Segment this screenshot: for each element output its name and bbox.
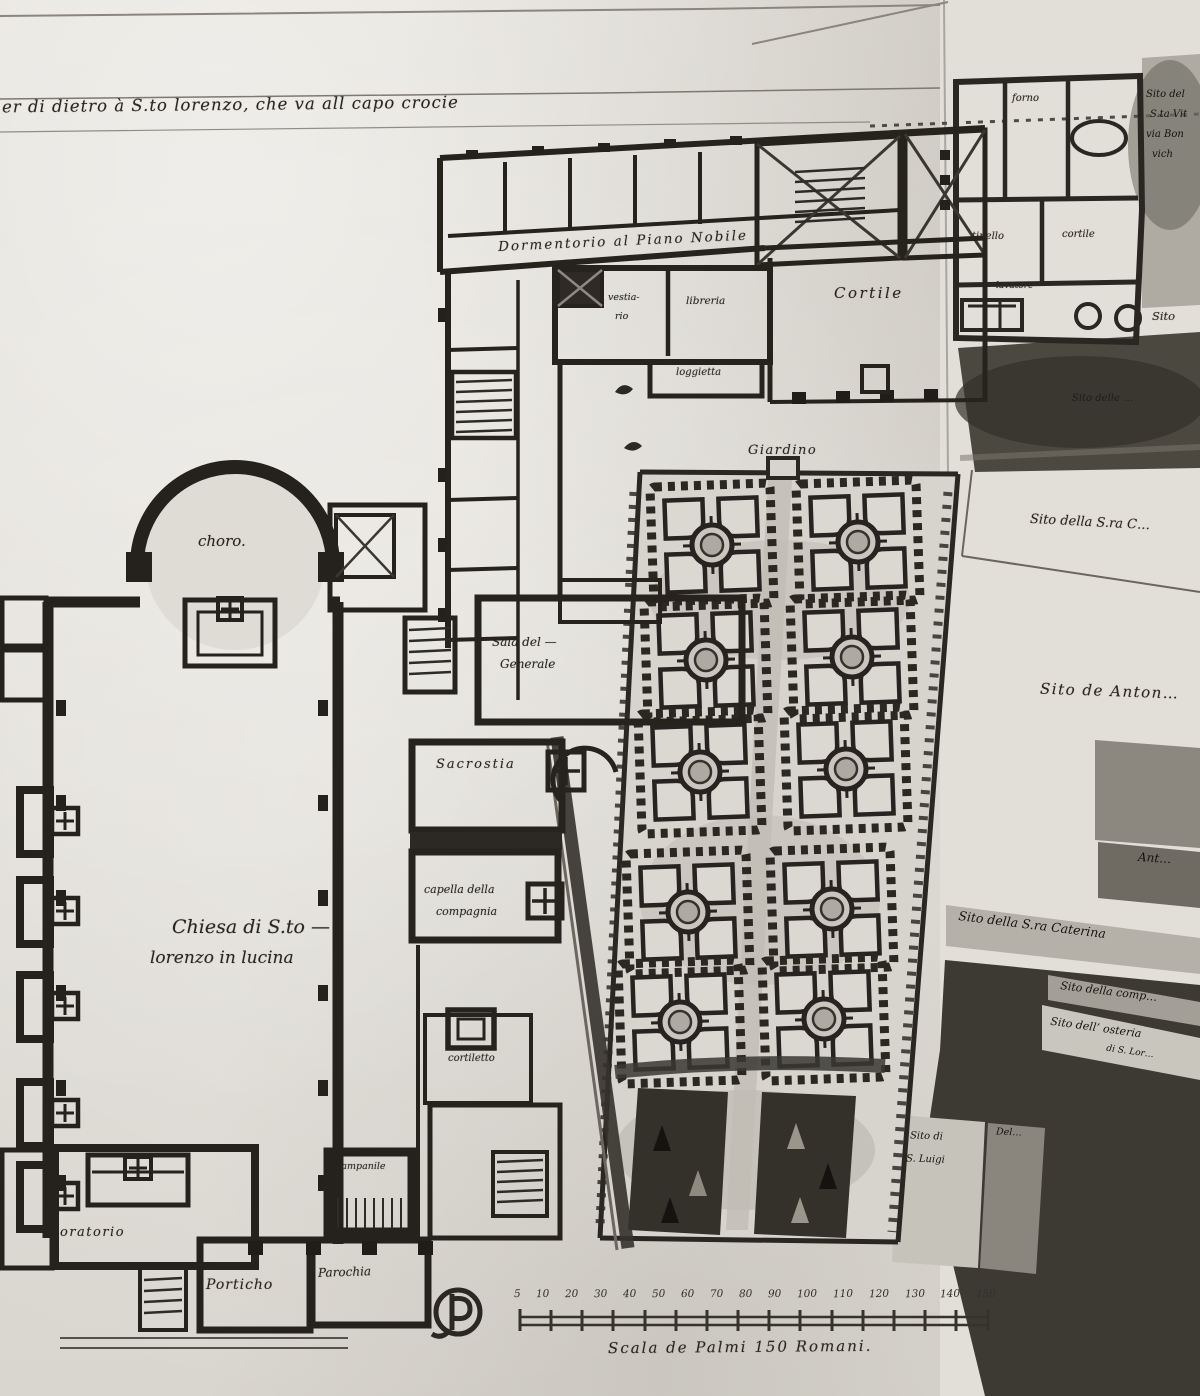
label-parochia: Parochia — [318, 1265, 372, 1279]
label-choro: choro. — [198, 534, 246, 550]
label-capella-2: compagnia — [436, 906, 497, 918]
capella-room — [412, 852, 558, 940]
scale-bar-caption: Scala de Palmi 150 Romani. — [608, 1339, 873, 1357]
label-sito-right: Sito — [1152, 310, 1175, 322]
well — [862, 366, 888, 392]
scale-tick: 40 — [623, 1288, 637, 1300]
church — [2, 467, 433, 1348]
scale-tick: 10 — [536, 1288, 550, 1300]
sketch-mark-icon — [615, 385, 633, 394]
label-sito-luigi-1: Sito di — [910, 1131, 943, 1143]
scale-tick: 30 — [594, 1288, 608, 1300]
label-sito-nw-1: Sito del — [1146, 90, 1185, 101]
label-vestiario-1: vestia- — [608, 293, 640, 303]
scale-tick: 100 — [797, 1288, 817, 1301]
label-oratorio: oratorio — [60, 1226, 125, 1240]
sketch-mark-icon — [624, 442, 642, 451]
label-cortile-small: cortile — [1062, 230, 1095, 241]
sacrestia-room — [412, 742, 562, 830]
plan-drawing — [0, 0, 1200, 1396]
garden-gate — [768, 458, 798, 478]
scale-tick: 110 — [833, 1288, 853, 1301]
scale-tick: 130 — [904, 1288, 924, 1301]
label-capella-1: capella della — [424, 884, 495, 896]
scale-tick: 90 — [768, 1288, 782, 1300]
label-chiesa-2: lorenzo in lucina — [150, 950, 294, 968]
garden — [600, 385, 958, 1242]
label-sito-nw-4: vich — [1152, 150, 1173, 161]
label-vestiario-2: rio — [615, 312, 628, 322]
collector-mark-icon — [432, 1290, 480, 1336]
label-sito-luigi-2: S. Luigi — [906, 1154, 945, 1166]
label-sito-nw-3: via Bon — [1146, 130, 1184, 141]
label-sito-delle: Sito delle … — [1072, 394, 1133, 405]
scale-tick: 5 — [514, 1288, 521, 1300]
label-cortiletto: cortiletto — [448, 1054, 495, 1065]
label-giardino: Giardino — [748, 444, 817, 458]
scale-tick: 50 — [652, 1288, 666, 1300]
scale-tick: 120 — [869, 1288, 889, 1301]
label-cortile: Cortile — [834, 286, 904, 302]
scale-tick: 140 — [940, 1288, 960, 1301]
label-sacrestia: Sacrostia — [436, 758, 516, 772]
scale-bar — [520, 1309, 988, 1331]
label-ant-fragment: Ant… — [1138, 851, 1172, 866]
label-porticho: Porticho — [206, 1278, 273, 1293]
sacristy-zone — [410, 742, 616, 1240]
scale-tick: 20 — [565, 1288, 579, 1300]
label-chiesa-1: Chiesa di S.to — — [172, 918, 330, 938]
label-sala-2: Generale — [500, 658, 555, 671]
scale-tick: 60 — [681, 1288, 695, 1300]
label-lavatore: lavatore — [996, 282, 1033, 291]
scale-tick: 150 — [976, 1288, 996, 1301]
label-sala-1: Sala del — — [492, 636, 557, 649]
label-tinello: tinello — [972, 232, 1004, 243]
label-forno: forno — [1012, 94, 1039, 105]
label-loggetta: loggietta — [676, 368, 721, 379]
label-sito-nw-2: S.ta Vit — [1150, 110, 1187, 121]
drawing-sheet: er di dietro à S.to lorenzo, che va all … — [0, 0, 1200, 1396]
scale-tick: 80 — [739, 1288, 753, 1300]
label-libreria: libreria — [686, 296, 725, 307]
plot-del-strip — [980, 1123, 1045, 1274]
scale-bar-tick-labels: 5 10 20 30 40 50 60 70 80 90 100 110 120… — [514, 1288, 996, 1300]
scale-tick: 70 — [710, 1288, 724, 1300]
label-campanile: campanile — [336, 1162, 386, 1172]
label-del-fragment: Del… — [996, 1127, 1022, 1138]
planted-bed-left — [628, 1088, 728, 1235]
